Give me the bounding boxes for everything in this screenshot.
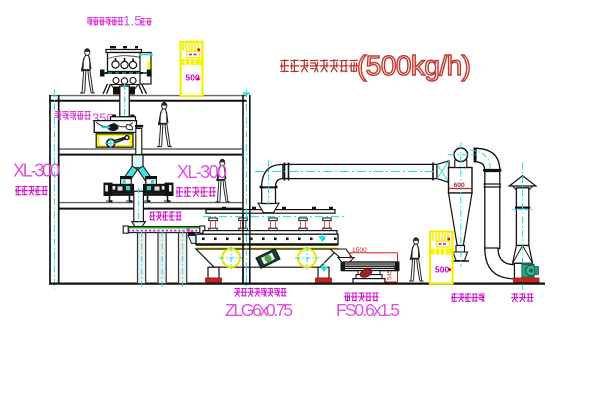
svg-text:XL-300: XL-300 (13, 161, 60, 181)
svg-text:XL-300: XL-300 (177, 162, 227, 182)
svg-text:500: 500 (186, 73, 200, 83)
svg-text:ZLG6x0.75: ZLG6x0.75 (225, 300, 293, 320)
svg-text:500: 500 (435, 265, 449, 275)
svg-text:1.5: 1.5 (123, 14, 142, 29)
svg-text:FS0.6x1.5: FS0.6x1.5 (336, 300, 400, 320)
svg-text:(500kg/h): (500kg/h) (357, 50, 471, 81)
svg-text:1500: 1500 (352, 247, 367, 254)
svg-text:600: 600 (454, 182, 466, 189)
